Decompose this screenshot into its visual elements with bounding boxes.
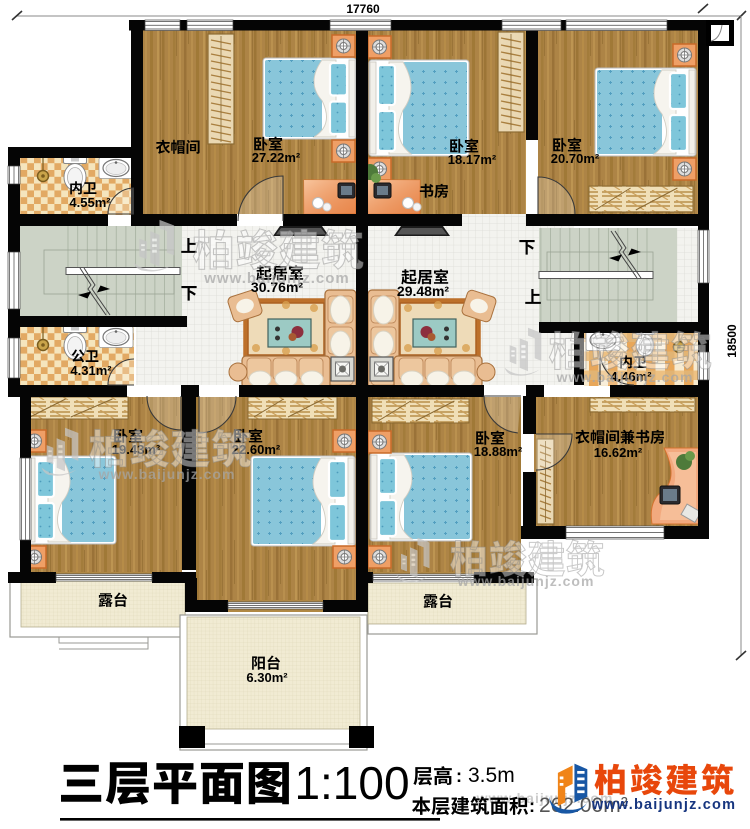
svg-text:27.22m²: 27.22m² [252, 150, 301, 165]
svg-text:4.31m²: 4.31m² [70, 363, 112, 378]
svg-text:www.baijunjz.com: www.baijunjz.com [591, 797, 736, 813]
svg-text:1:100: 1:100 [294, 757, 409, 809]
svg-text:16.62m²: 16.62m² [594, 445, 643, 460]
svg-text:3.5m: 3.5m [468, 764, 515, 787]
svg-text:6.30m²: 6.30m² [246, 670, 288, 685]
svg-text:18.17m²: 18.17m² [448, 152, 497, 167]
svg-text:20.70m²: 20.70m² [551, 151, 600, 166]
svg-text::: : [456, 766, 462, 786]
svg-text:www.baijunjz.com: www.baijunjz.com [556, 369, 694, 385]
svg-text:17760: 17760 [346, 2, 380, 16]
svg-text:4.55m²: 4.55m² [69, 195, 111, 210]
svg-text:www.baijunjz.com: www.baijunjz.com [203, 270, 349, 287]
svg-text:29.48m²: 29.48m² [397, 283, 449, 299]
svg-text:18.88m²: 18.88m² [474, 444, 523, 459]
svg-text:www.baijunjz.com: www.baijunjz.com [98, 466, 236, 482]
svg-text::: : [529, 796, 535, 816]
svg-text:18500: 18500 [725, 324, 739, 358]
svg-text:www.baijunjz.com: www.baijunjz.com [457, 573, 595, 589]
